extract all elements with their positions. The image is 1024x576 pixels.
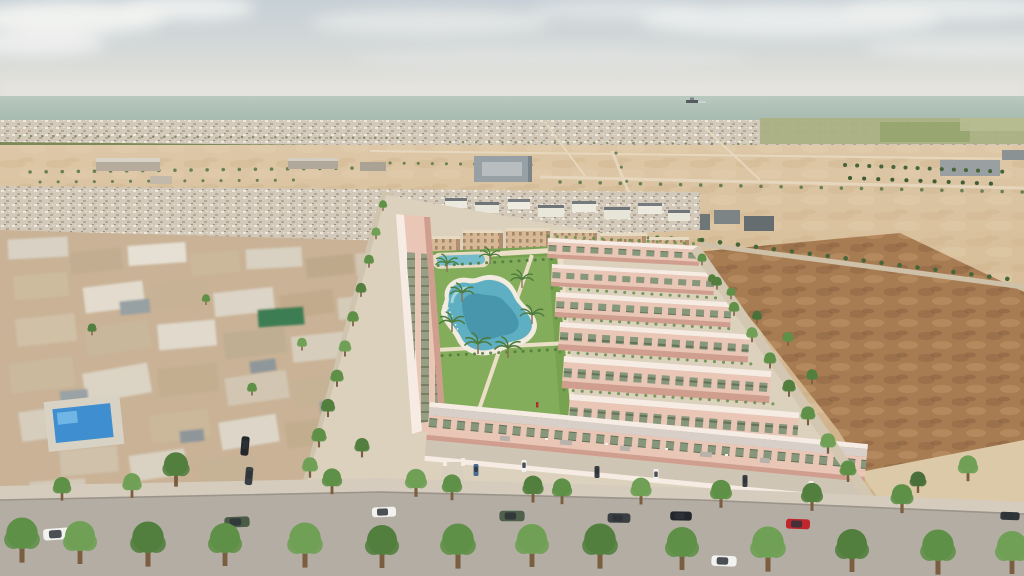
cloud	[350, 48, 750, 68]
render-canvas	[0, 0, 1024, 576]
car-white-moving	[711, 555, 737, 566]
sea-horizon-line	[0, 96, 1024, 100]
car-parked-vertical	[240, 436, 250, 456]
car-olive-suv	[499, 511, 524, 522]
pedestrian	[536, 402, 538, 408]
gate-post	[461, 458, 465, 466]
aerial-render-image	[0, 0, 1024, 576]
car-white	[372, 507, 396, 518]
old-town-private-pool	[44, 394, 125, 452]
car-red	[786, 519, 810, 530]
cloud	[310, 9, 550, 35]
car-black	[670, 511, 692, 520]
large-gray-building	[474, 156, 532, 182]
green-tarp-roof	[257, 306, 304, 327]
car-parked-vertical	[244, 467, 253, 486]
far-fields	[760, 118, 1024, 144]
car-dark	[1000, 512, 1019, 521]
car-dark	[608, 513, 631, 523]
gate-post	[443, 458, 447, 466]
